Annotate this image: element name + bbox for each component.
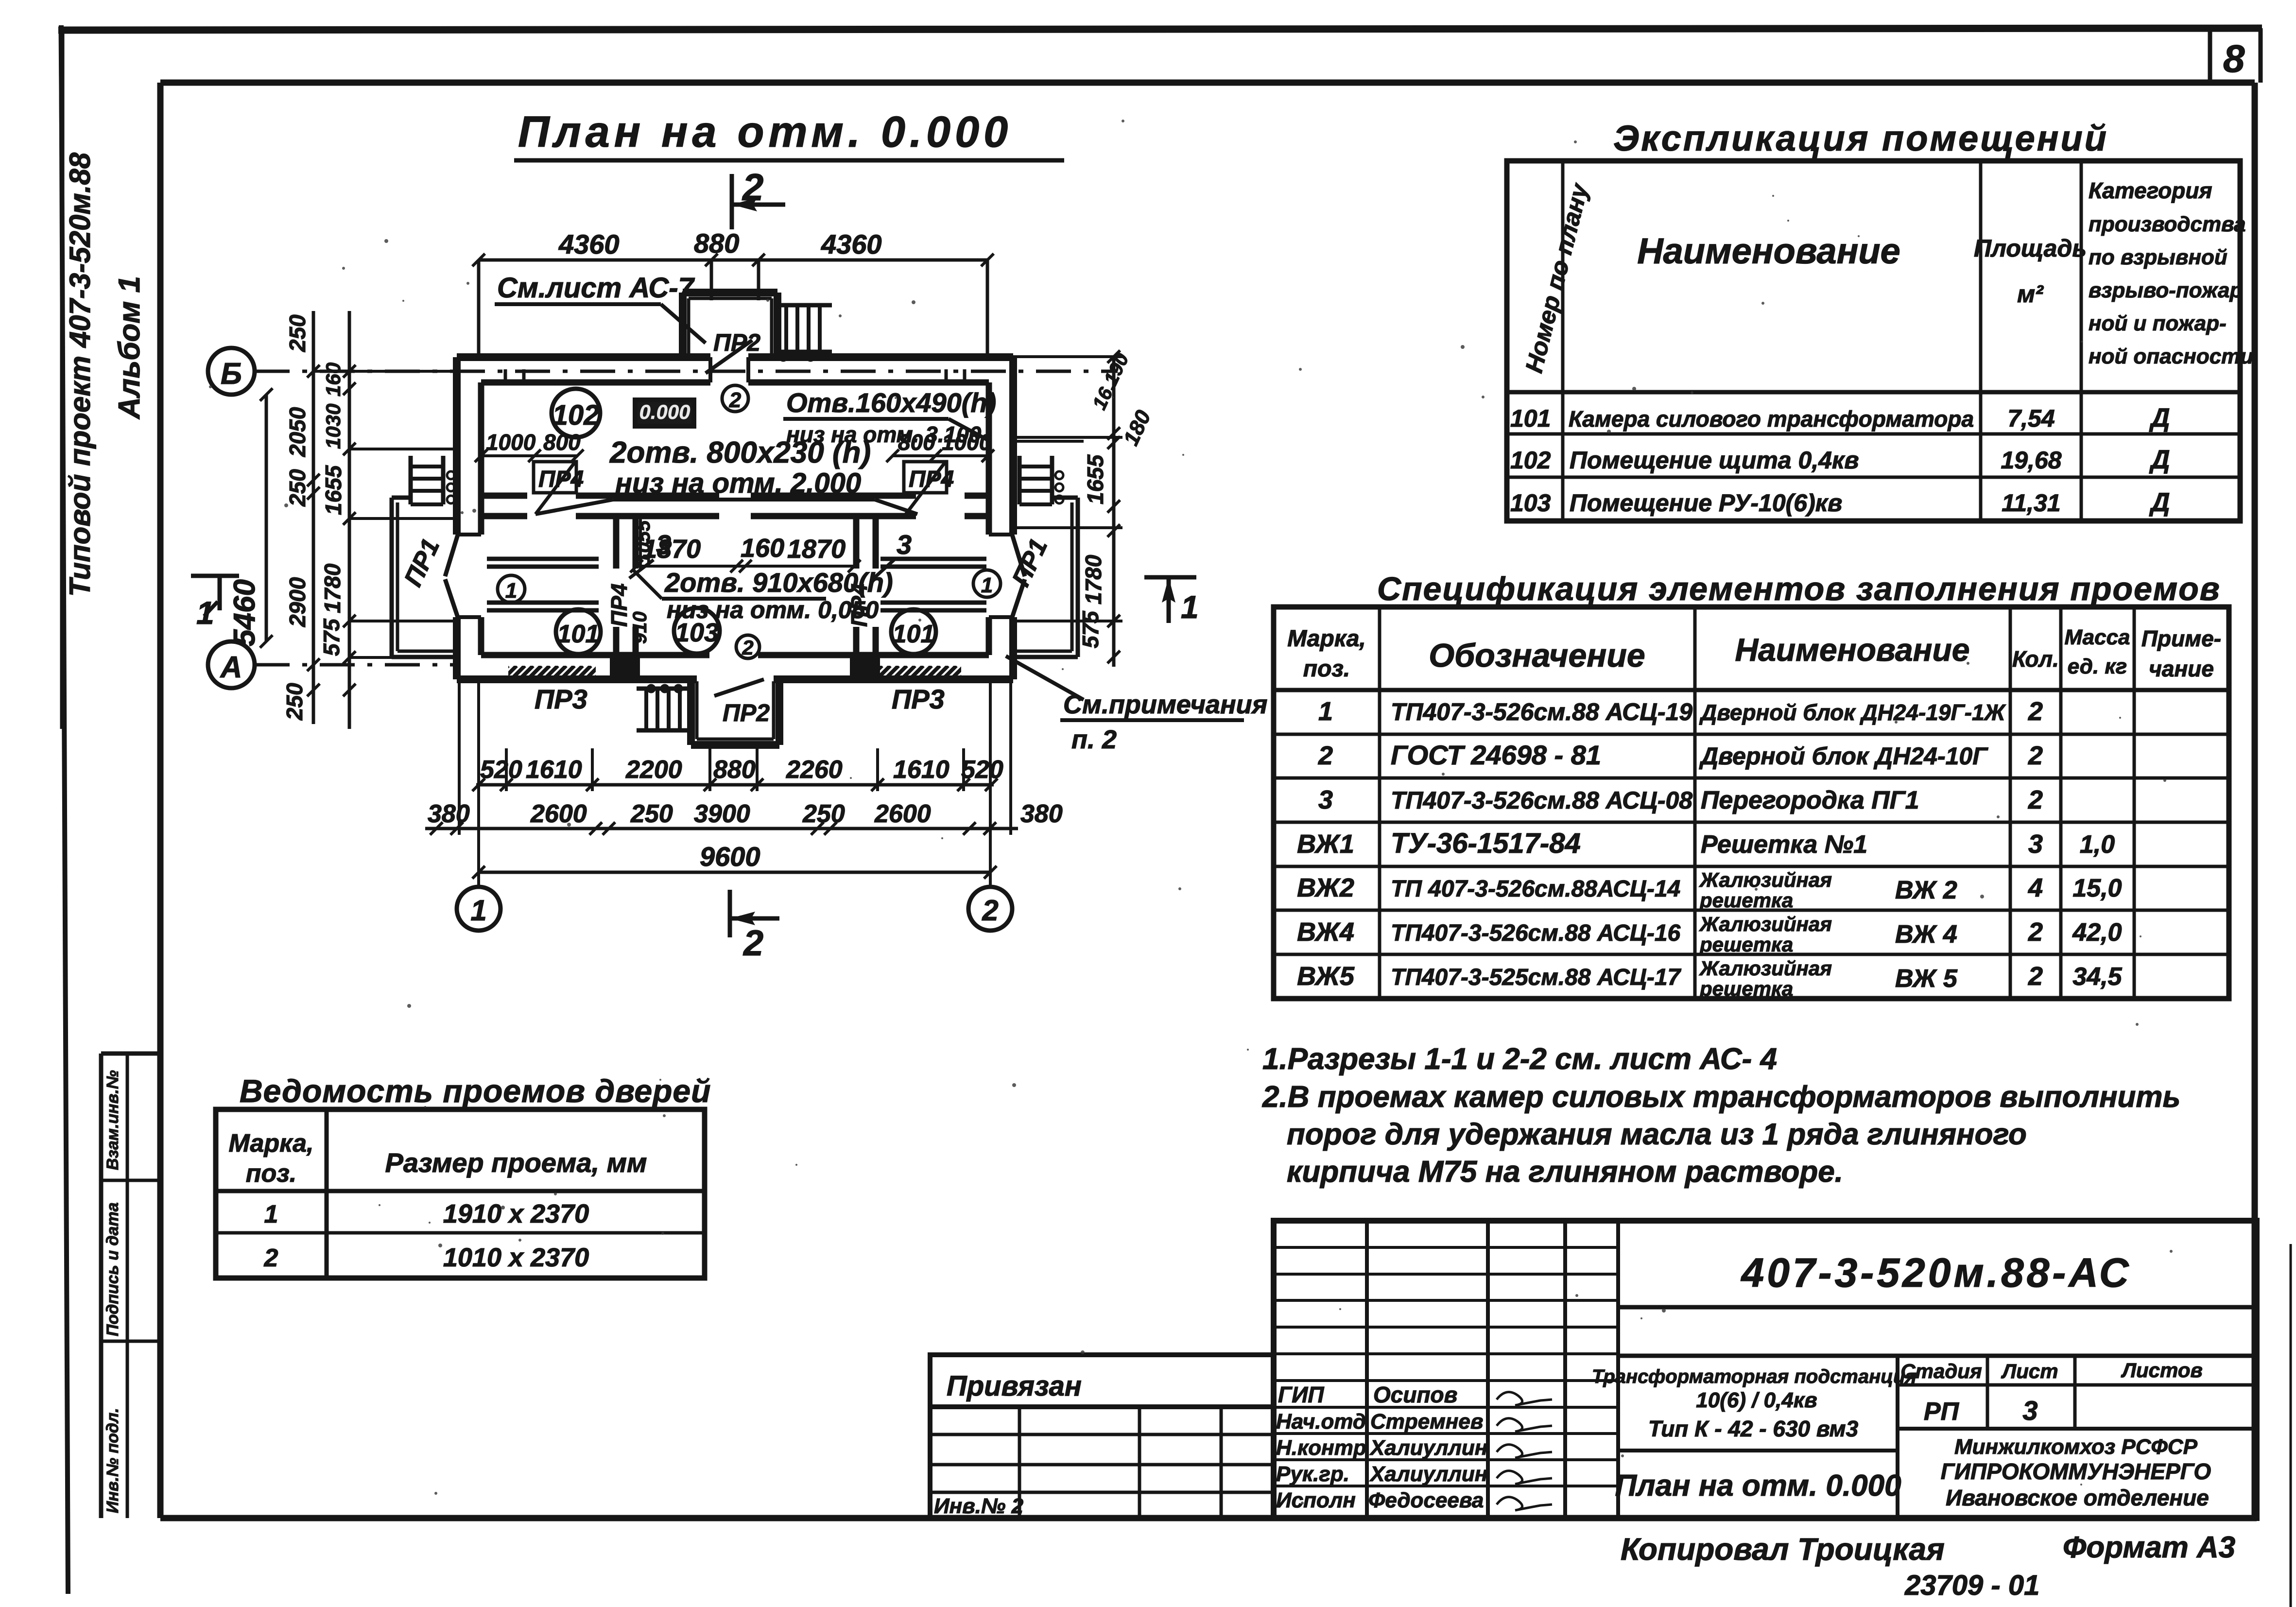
svg-text:2: 2 [2028,962,2043,991]
svg-text:2: 2 [2028,785,2043,814]
svg-text:2900: 2900 [285,577,310,627]
svg-text:15,0: 15,0 [2072,874,2122,902]
svg-text:1010 х 2370: 1010 х 2370 [443,1243,589,1272]
svg-text:Стадия: Стадия [1900,1360,1982,1382]
svg-text:Решетка №1: Решетка №1 [1701,830,1867,859]
svg-text:Типовой проект 407-3-520м.88: Типовой проект 407-3-520м.88 [64,152,96,597]
svg-text:См.примечания: См.примечания [1063,690,1267,719]
svg-text:2: 2 [264,1244,278,1272]
svg-text:Осипов: Осипов [1373,1382,1457,1407]
svg-text:Дверной блок ДН24-10Г: Дверной блок ДН24-10Г [1699,743,1988,770]
svg-text:3: 3 [2028,829,2043,859]
svg-text:Рук.гр.: Рук.гр. [1276,1462,1349,1486]
svg-text:2отв. 910х680(h): 2отв. 910х680(h) [664,567,893,598]
svg-text:Д: Д [2149,445,2170,474]
svg-text:Ведомость проемов дверей: Ведомость проемов дверей [240,1073,711,1109]
svg-text:ед. кг: ед. кг [2068,655,2127,678]
svg-text:5460: 5460 [228,579,261,646]
svg-text:2: 2 [742,636,753,659]
svg-text:10(6) / 0,4кв: 10(6) / 0,4кв [1696,1388,1817,1412]
svg-text:880: 880 [713,756,756,784]
svg-text:ВЖ5: ВЖ5 [1297,962,1355,991]
svg-text:ГИПРОКОММУНЭНЕРГО: ГИПРОКОММУНЭНЕРГО [1941,1459,2211,1484]
svg-text:Минжилкомхоз РСФСР: Минжилкомхоз РСФСР [1954,1435,2198,1459]
svg-text:1030: 1030 [322,404,345,449]
svg-text:Масса: Масса [2064,625,2130,649]
svg-text:Отв.160х490(h): Отв.160х490(h) [786,387,996,418]
svg-text:п. 2: п. 2 [1071,725,1117,754]
svg-text:поз.: поз. [246,1159,297,1188]
svg-text:Листов: Листов [2121,1359,2203,1382]
svg-text:ПР4: ПР4 [606,584,632,627]
svg-text:575: 575 [319,618,344,656]
svg-text:Марка,: Марка, [229,1129,314,1158]
svg-text:А: А [220,651,242,684]
svg-text:чание: чание [2149,656,2214,681]
svg-text:800: 800 [898,430,935,455]
svg-text:2: 2 [2028,917,2043,947]
svg-text:250: 250 [630,800,673,828]
svg-text:Спецификация элементов запол: Спецификация элементов заполнения проемо… [1377,570,2221,607]
svg-text:11,31: 11,31 [2002,489,2060,517]
svg-text:Исполн: Исполн [1276,1488,1356,1512]
svg-text:2260: 2260 [786,756,843,784]
svg-text:101: 101 [893,620,935,648]
svg-text:1: 1 [981,573,993,597]
svg-text:Наименование: Наименование [1735,632,1970,668]
svg-text:Взам.инв.№: Взам.инв.№ [104,1070,122,1170]
svg-text:102: 102 [552,399,600,431]
svg-text:880: 880 [694,228,739,259]
svg-text:ВЖ 4: ВЖ 4 [1895,920,1957,949]
svg-text:ТП 407-3-526см.88АСЦ-14: ТП 407-3-526см.88АСЦ-14 [1391,876,1680,902]
svg-text:2: 2 [742,923,763,963]
svg-text:ТП407-3-526см.88 АСЦ-19: ТП407-3-526см.88 АСЦ-19 [1391,698,1692,726]
svg-text:8: 8 [2223,37,2245,80]
svg-text:160: 160 [322,363,345,397]
svg-text:4360: 4360 [558,229,620,259]
svg-text:Формат А3: Формат А3 [2063,1531,2235,1564]
svg-text:1: 1 [505,579,517,603]
svg-text:1: 1 [1181,589,1199,625]
svg-text:Тип К - 42 - 630 вм3: Тип К - 42 - 630 вм3 [1648,1416,1859,1441]
svg-text:160: 160 [741,534,784,563]
svg-text:2050: 2050 [285,407,310,457]
svg-text:Инв.№ подл.: Инв.№ подл. [104,1408,122,1513]
svg-text:102: 102 [1510,447,1551,474]
svg-text:4: 4 [2028,873,2043,902]
svg-text:Экспликация помещений: Экспликация помещений [1613,118,2108,158]
svg-text:Кол.: Кол. [2012,646,2059,672]
svg-text:Ивановское отделение: Ивановское отделение [1946,1485,2209,1510]
svg-text:3: 3 [2022,1395,2037,1426]
svg-text:Перегородка ПГ1: Перегородка ПГ1 [1701,786,1919,814]
svg-text:101: 101 [1510,405,1551,432]
svg-text:34,5: 34,5 [2072,963,2122,991]
svg-text:ГИП: ГИП [1278,1382,1324,1407]
svg-text:1780: 1780 [1081,554,1106,605]
svg-text:1000: 1000 [486,430,536,455]
svg-text:1: 1 [264,1200,278,1228]
svg-text:ВЖ2: ВЖ2 [1297,873,1354,902]
svg-text:м²: м² [2017,280,2044,308]
svg-text:3: 3 [1318,785,1333,814]
svg-text:Жалюзийная: Жалюзийная [1699,868,1832,891]
svg-text:Стремнев: Стремнев [1370,1410,1483,1434]
svg-text:1055: 1055 [633,520,654,564]
svg-text:Д: Д [2149,403,2170,432]
svg-text:ВЖ4: ВЖ4 [1297,917,1354,947]
svg-text:1: 1 [1318,697,1333,726]
svg-text:1000: 1000 [942,430,992,455]
svg-text:План на отм. 0.000: План на отм. 0.000 [518,108,1012,156]
svg-text:1655: 1655 [1083,454,1108,504]
svg-text:Альбом 1: Альбом 1 [113,276,146,420]
svg-text:РП: РП [1924,1398,1960,1426]
svg-text:103: 103 [1510,489,1551,517]
svg-text:решетка: решетка [1699,933,1793,956]
svg-text:Жалюзийная: Жалюзийная [1699,913,1832,935]
svg-text:низ на отм. 0,050: низ на отм. 0,050 [667,596,879,623]
svg-text:Обозначение: Обозначение [1429,637,1645,674]
svg-text:порог для удержания масла: порог для удержания масла из 1 ряда глин… [1287,1118,2027,1151]
svg-text:575: 575 [1078,610,1103,648]
svg-text:Халиуллин: Халиуллин [1369,1462,1487,1486]
svg-text:7,54: 7,54 [2007,405,2054,432]
svg-text:1655: 1655 [321,465,346,515]
svg-text:План на отм. 0.000: План на отм. 0.000 [1615,1469,1901,1503]
svg-text:2: 2 [729,388,742,412]
svg-text:низ на отм. 2.000: низ на отм. 2.000 [615,467,861,499]
svg-text:2200: 2200 [625,756,682,784]
svg-text:Жалюзийная: Жалюзийная [1699,957,1832,980]
svg-text:взрыво-пожар: взрыво-пожар [2089,278,2243,302]
svg-text:1870: 1870 [787,535,846,564]
svg-text:Привязан: Привязан [947,1370,1082,1402]
svg-text:по взрывной: по взрывной [2089,245,2227,269]
svg-text:2600: 2600 [530,800,587,828]
svg-text:Категория: Категория [2089,178,2212,203]
svg-text:250: 250 [282,683,307,721]
svg-text:380: 380 [1020,800,1063,828]
svg-text:Помещение щита 0,4кв: Помещение щита 0,4кв [1570,447,1859,474]
svg-text:2.В проемах камер силовых: 2.В проемах камер силовых трансформаторо… [1262,1080,2180,1114]
svg-text:3900: 3900 [694,800,750,828]
svg-text:ВЖ 5: ВЖ 5 [1895,965,1958,993]
svg-text:1: 1 [470,894,486,927]
svg-text:производства: производства [2089,212,2246,236]
svg-text:ной опасности: ной опасности [2089,345,2253,368]
svg-text:2: 2 [1318,741,1333,770]
svg-text:380: 380 [428,800,470,828]
svg-text:решетка: решетка [1699,977,1793,1000]
svg-text:Нач.отд: Нач.отд [1276,1410,1366,1434]
svg-text:Приме-: Приме- [2141,626,2221,651]
svg-text:Федосеева: Федосеева [1368,1488,1484,1512]
svg-text:1780: 1780 [320,563,345,613]
svg-text:1.Разрезы 1-1 и 2-2 см. лис: 1.Разрезы 1-1 и 2-2 см. лист АС- 4 [1262,1042,1777,1076]
svg-text:ВЖ 2: ВЖ 2 [1895,876,1957,904]
svg-text:Марка,: Марка, [1287,626,1366,652]
svg-text:1610: 1610 [526,756,582,784]
svg-text:250: 250 [285,314,310,352]
svg-text:ПР2: ПР2 [723,699,770,726]
svg-text:ПР3: ПР3 [892,684,945,714]
svg-text:520: 520 [480,756,522,784]
svg-text:ГОСТ 24698 - 81: ГОСТ 24698 - 81 [1391,740,1601,770]
svg-text:Трансформаторная подстанция: Трансформаторная подстанция [1592,1366,1916,1387]
svg-text:9600: 9600 [700,841,760,872]
svg-text:Д: Д [2149,488,2170,517]
svg-text:4360: 4360 [821,229,882,259]
svg-text:42,0: 42,0 [2072,918,2122,947]
svg-text:250: 250 [802,800,845,828]
svg-text:Помещение РУ-10(6)кв: Помещение РУ-10(6)кв [1570,489,1842,517]
svg-text:800: 800 [543,430,581,455]
svg-text:101: 101 [557,620,600,648]
svg-text:ной и пожар-: ной и пожар- [2089,311,2227,335]
svg-text:Подпись и дата: Подпись и дата [104,1202,122,1336]
svg-text:Халиуллин: Халиуллин [1369,1436,1487,1460]
svg-text:ТП407-3-525см.88 АСЦ-17: ТП407-3-525см.88 АСЦ-17 [1391,965,1682,990]
svg-text:Н.контр: Н.контр [1276,1436,1366,1460]
svg-text:решетка: решетка [1699,889,1793,912]
svg-text:23709 - 01: 23709 - 01 [1904,1570,2039,1601]
svg-text:кирпича М75 на глиняном ра: кирпича М75 на глиняном растворе. [1287,1155,1843,1189]
svg-text:ТУ-36-1517-84: ТУ-36-1517-84 [1391,828,1581,859]
svg-text:3: 3 [897,529,912,560]
svg-text:Наименование: Наименование [1637,231,1900,271]
svg-text:2: 2 [982,894,998,927]
svg-text:3: 3 [656,529,671,560]
svg-text:19,68: 19,68 [2001,447,2061,474]
svg-text:Копировал Троицкая: Копировал Троицкая [1621,1532,1945,1567]
svg-text:520: 520 [961,756,1003,784]
svg-text:Б: Б [221,357,242,391]
svg-text:407-3-520м.88-АС: 407-3-520м.88-АС [1741,1250,2132,1296]
svg-text:Дверной блок ДН24-19Г-1Ж: Дверной блок ДН24-19Г-1Ж [1699,700,2006,725]
svg-text:2: 2 [2028,697,2043,726]
svg-text:поз.: поз. [1303,656,1350,682]
svg-text:2600: 2600 [874,800,931,828]
svg-text:250: 250 [285,469,310,507]
svg-text:1610: 1610 [893,756,949,784]
svg-text:ПР3: ПР3 [535,684,587,714]
svg-text:2отв. 800х230 (h): 2отв. 800х230 (h) [609,436,871,469]
svg-text:ТП407-3-526см.88 АСЦ-08: ТП407-3-526см.88 АСЦ-08 [1391,787,1692,814]
svg-text:ТП407-3-526см.88 АСЦ-16: ТП407-3-526см.88 АСЦ-16 [1391,920,1681,946]
svg-text:См.лист АС-7: См.лист АС-7 [497,272,695,304]
svg-text:Площадь: Площадь [1974,235,2087,262]
svg-text:0.000: 0.000 [639,400,690,423]
svg-text:Размер проема, мм: Размер проема, мм [385,1147,647,1178]
svg-text:1910 х 2370: 1910 х 2370 [443,1199,589,1228]
svg-text:2: 2 [2028,741,2043,770]
svg-text:910: 910 [629,611,651,644]
svg-text:1,0: 1,0 [2080,830,2115,859]
svg-text:ВЖ1: ВЖ1 [1297,829,1354,859]
svg-text:Лист: Лист [2001,1360,2058,1382]
svg-text:Инв.№ 2: Инв.№ 2 [934,1494,1024,1518]
svg-text:Камера силового трансформатора: Камера силового трансформатора [1569,406,1974,432]
